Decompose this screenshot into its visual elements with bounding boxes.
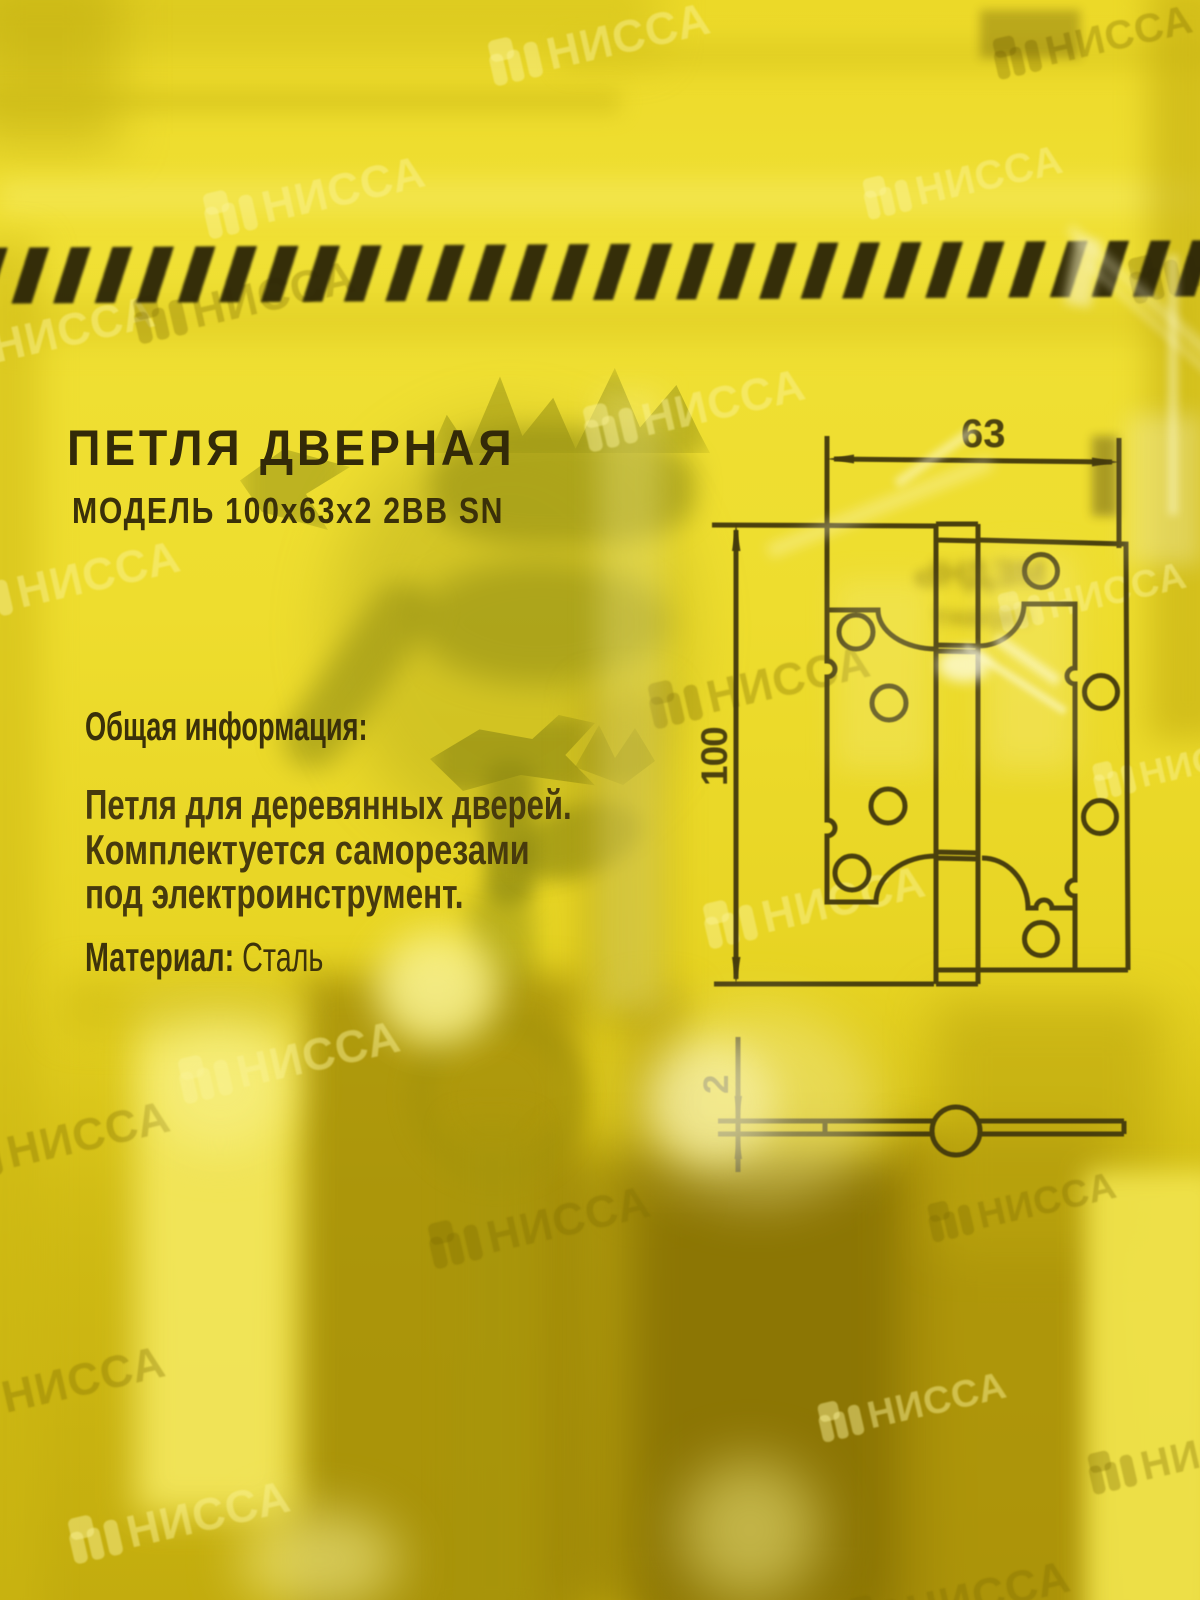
svg-text:100: 100 xyxy=(694,727,735,786)
